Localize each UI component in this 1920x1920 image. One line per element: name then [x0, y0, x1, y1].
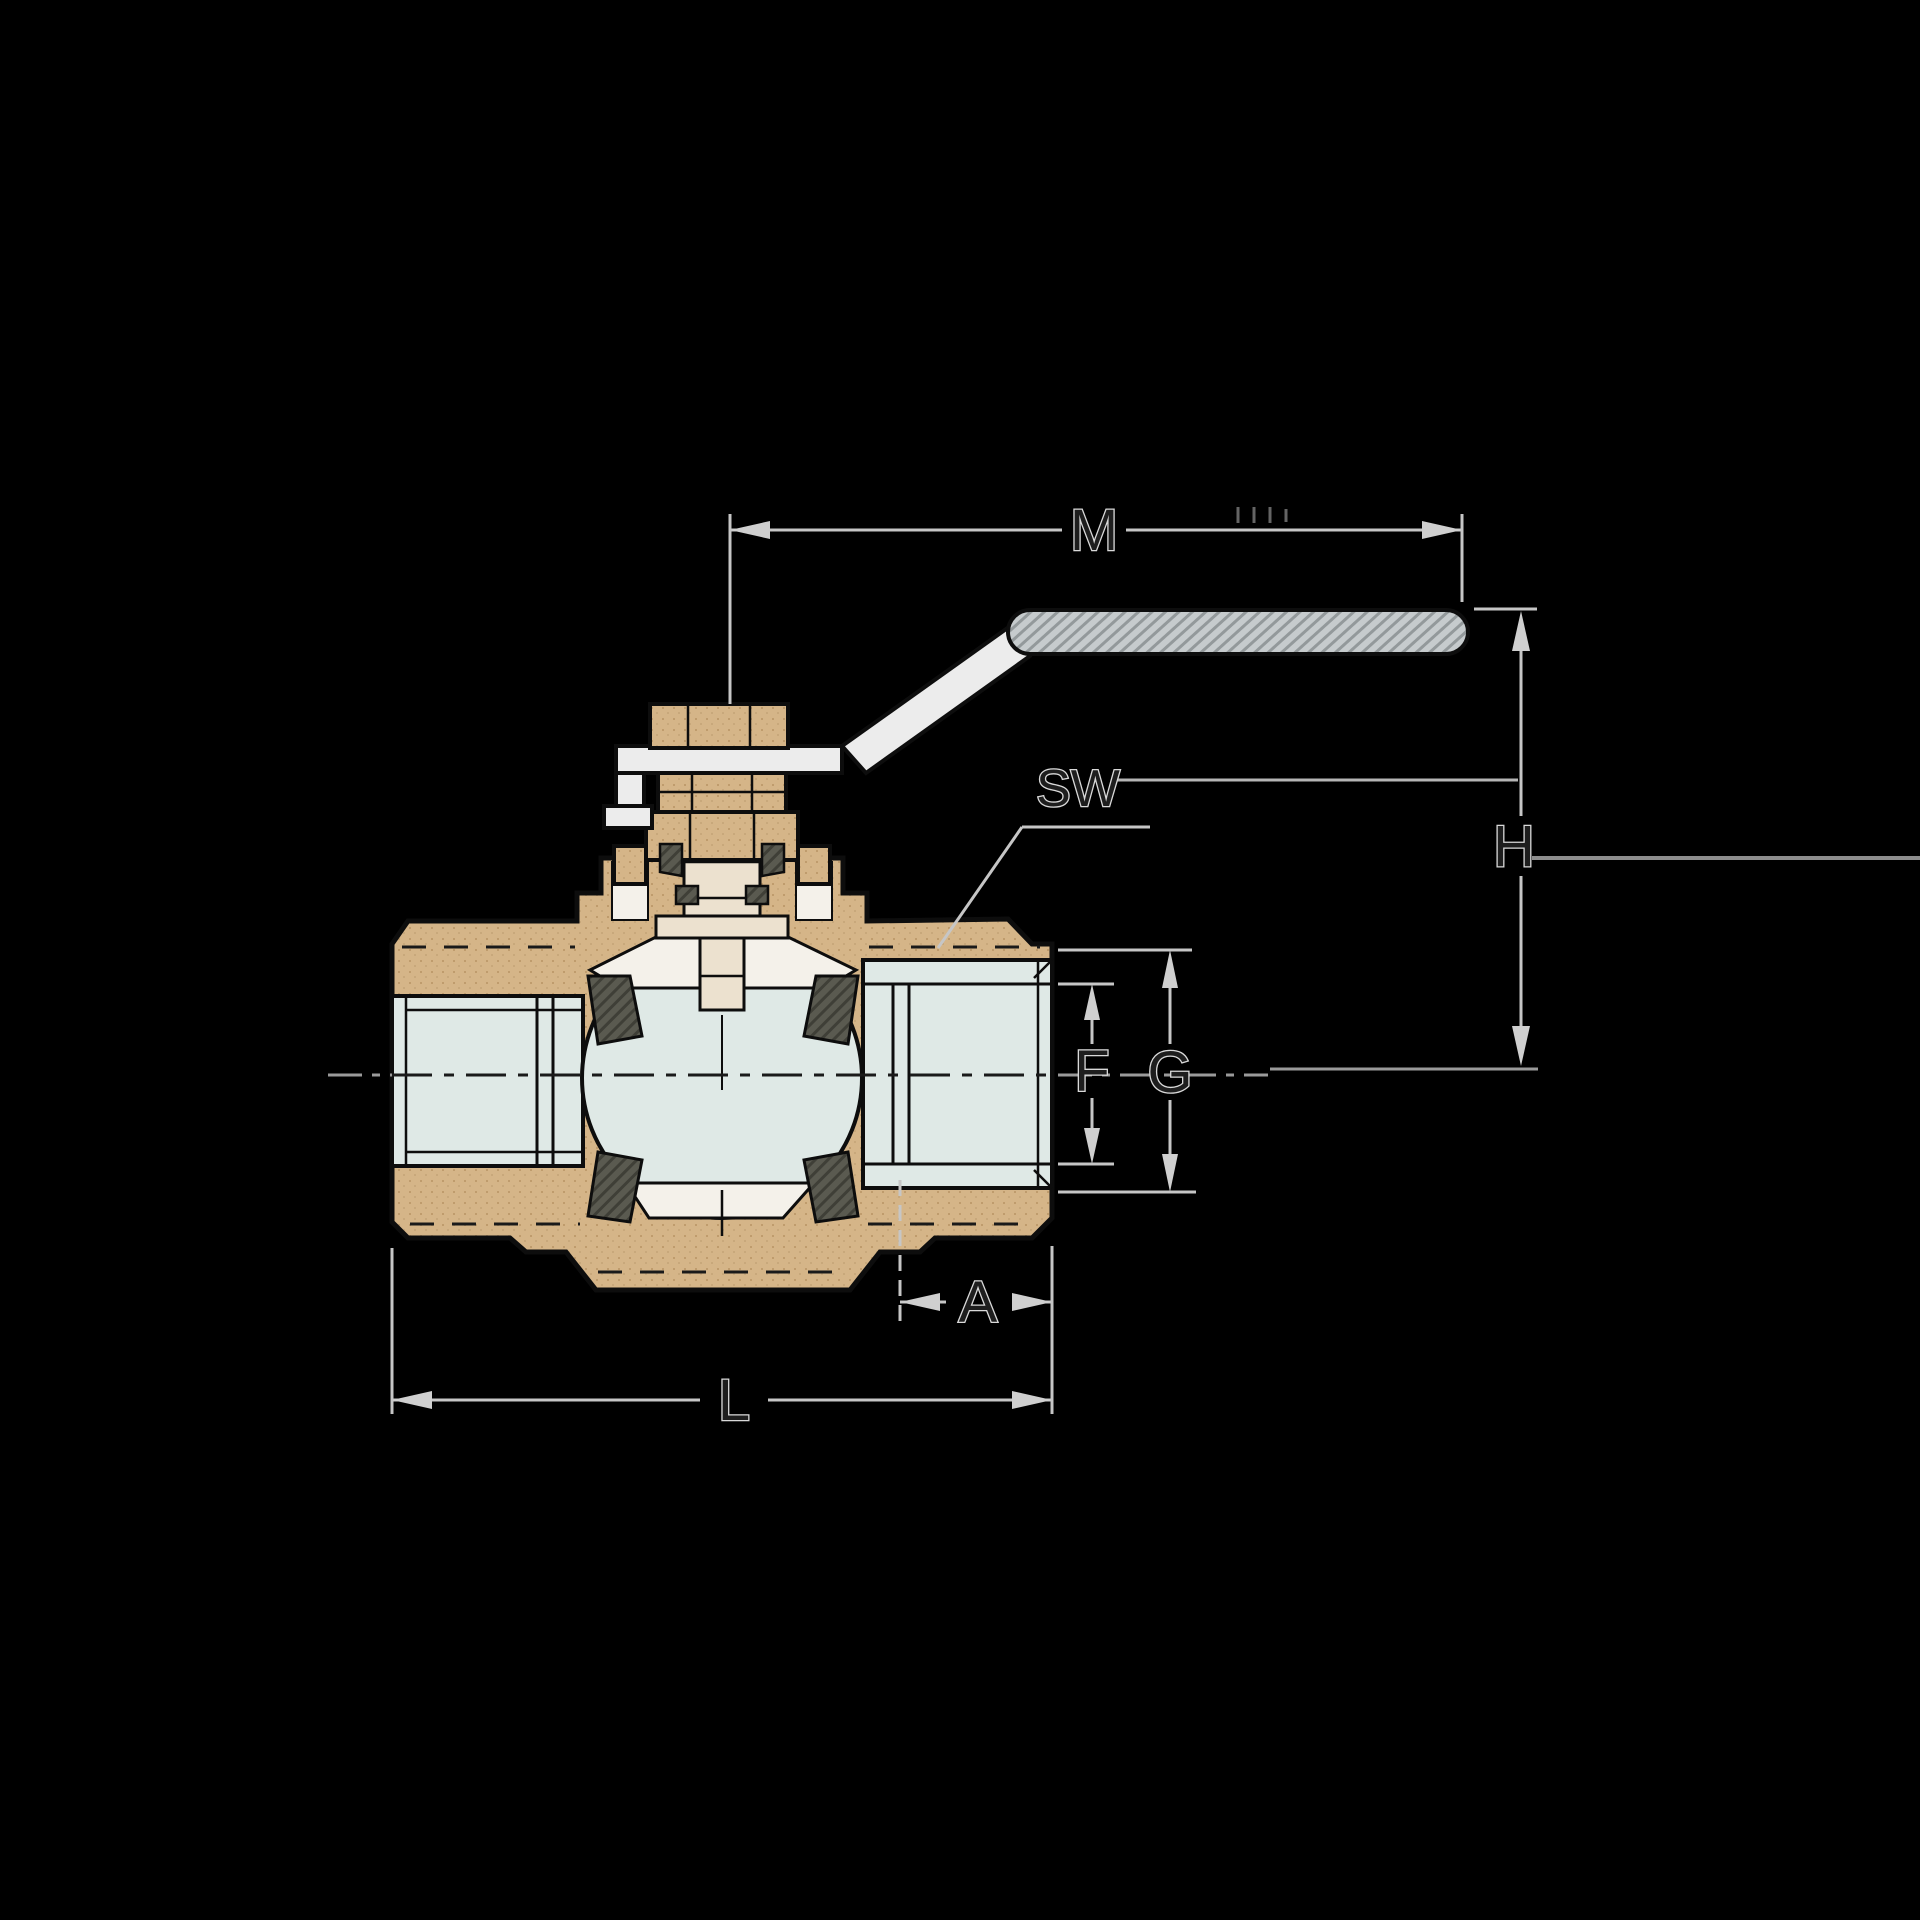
label-g: G: [1147, 1040, 1192, 1105]
stem-foot: [700, 938, 744, 1010]
bonnet-tab-right: [798, 846, 830, 884]
port-left: [392, 996, 583, 1166]
label-h: H: [1493, 814, 1535, 879]
ball-chamber: [582, 936, 862, 1236]
stem-packing-left: [660, 844, 682, 876]
ball-valve-technical-drawing: M H SW F G: [0, 0, 1920, 1920]
label-l: L: [718, 1368, 750, 1433]
stem-seal-lower-left: [676, 886, 698, 904]
label-a: A: [959, 1270, 998, 1335]
bottom-insert: [626, 1183, 814, 1218]
handle-grip: [1008, 610, 1468, 654]
handle-arm-flat: [616, 746, 842, 773]
dimension-h: H: [1474, 609, 1537, 1066]
dimension-m: M: [730, 498, 1462, 704]
label-f: F: [1074, 1039, 1109, 1104]
handle-hook-foot: [604, 806, 652, 828]
arrowhead-right: [1422, 521, 1462, 539]
stem-base-flange: [656, 916, 788, 938]
arrowhead-left: [730, 521, 770, 539]
label-m: M: [1070, 498, 1118, 563]
stem-seal-lower-right: [746, 886, 768, 904]
bonnet-tab-left: [614, 846, 646, 884]
stem-nut: [650, 704, 788, 748]
scan-tick-marks: [1238, 507, 1286, 523]
stem-packing-right: [762, 844, 784, 876]
handle-arm-diagonal: [842, 612, 1030, 773]
drawing-canvas: M H SW F G: [0, 0, 1920, 1920]
label-sw: SW: [1036, 760, 1120, 818]
